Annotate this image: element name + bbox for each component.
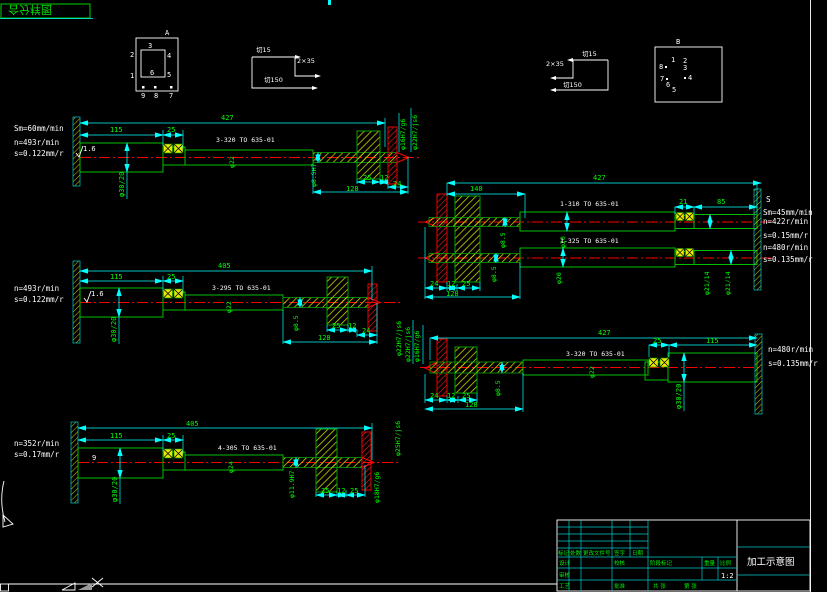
tb-count: 处数 xyxy=(570,549,582,557)
d4-w3: 25 xyxy=(462,392,470,400)
d2-s-mark: S xyxy=(766,195,771,204)
d5-dia: φ24 xyxy=(227,461,235,473)
detail-a-point: 2 xyxy=(130,51,134,59)
d2-w4: 128 xyxy=(446,290,459,298)
d5-fit1: φ18H7/g6 xyxy=(373,472,381,503)
d5-bushing xyxy=(316,429,337,492)
d1-speed: n=493r/min xyxy=(14,138,59,147)
d4-w1: 24 xyxy=(430,392,438,400)
cad-canvas: 合分样图 A 3 2 4 1 5 6 9 8 7 B 1 2 3 4 5 6 7… xyxy=(0,0,827,592)
d4-dim-l2: 25 xyxy=(653,337,661,345)
d2-w3: 25 xyxy=(462,280,470,288)
d2-bushing xyxy=(455,196,480,282)
d3-drill: φ8.5 xyxy=(292,315,300,331)
d3-bushing xyxy=(327,277,348,325)
d5-w2: 12 xyxy=(337,487,345,495)
d5-feedrev: s=0.17mm/r xyxy=(14,450,60,459)
d1-wall-hatch xyxy=(73,117,80,186)
tb-approve: 批准 xyxy=(614,582,626,590)
d3-fit: φ22H7/js6 xyxy=(395,321,403,356)
tb-audit: 审核 xyxy=(559,571,571,579)
toolpath-label: 切15 xyxy=(582,50,597,58)
d2-dim-85: 85 xyxy=(717,198,725,206)
detail-b-point: 7 xyxy=(660,75,664,83)
d3-speed: n=493r/min xyxy=(14,284,59,293)
tb-check: 校核 xyxy=(614,559,626,567)
tb-scale-label: 比例 xyxy=(720,559,732,567)
d3-process: 3-295 TO 635-01 xyxy=(212,284,271,292)
detail-a-point: 6 xyxy=(150,69,154,77)
tb-drawing-title: 加工示意图 xyxy=(747,556,795,568)
detail-a-point: 4 xyxy=(167,52,171,60)
toolpath-label: 切150 xyxy=(264,76,283,84)
d1-dia: φ22 xyxy=(228,156,236,168)
detail-b-point: 5 xyxy=(672,86,676,94)
d2-red-plate xyxy=(437,194,447,282)
tb-changefile: 更改文件号 xyxy=(583,549,611,557)
toolpath-label: 2×35 xyxy=(546,60,564,68)
detail-a-point: 1 xyxy=(130,72,134,80)
d1-dim-l2: 25 xyxy=(167,126,175,134)
d5-dim-total: 405 xyxy=(186,420,199,428)
d1-feedrev: s=0.122mm/r xyxy=(14,149,64,158)
d3-w1: 25 xyxy=(332,322,340,330)
d2-speed1: n=422r/min xyxy=(763,217,808,226)
tb-process: 工艺 xyxy=(559,583,571,590)
d3-dim-l1: 115 xyxy=(110,273,123,281)
d1-w1: 25 xyxy=(363,174,371,182)
detail-b-point: 6 xyxy=(666,81,670,89)
d2-process2: 1-325 TO 635-01 xyxy=(560,237,619,245)
d4-fit2: φ16H7/g6 xyxy=(413,331,421,362)
d5-fit2: φ25H7/js6 xyxy=(394,421,402,456)
tb-date: 日期 xyxy=(632,550,644,557)
tb-weight: 重量 xyxy=(704,559,716,567)
d4-drill: φ8.5 xyxy=(494,380,502,396)
tb-sheet-no: 第 张 xyxy=(684,582,697,590)
tb-sign: 签字 xyxy=(614,549,626,557)
detail-a-point: 3 xyxy=(148,42,152,50)
tb-mark: 标记 xyxy=(558,549,570,557)
detail-b-point: 1 xyxy=(671,56,675,64)
d3-roughness: 1.6 xyxy=(91,290,104,298)
d4-fit1: φ22H7/js6 xyxy=(404,327,412,362)
d1-dim-total: 427 xyxy=(221,114,234,122)
d2-fit2: φ21/14 xyxy=(724,271,732,295)
toolpath-label: 切15 xyxy=(256,46,271,54)
corner-title: 合分样图 xyxy=(8,3,52,17)
d5-red-plate xyxy=(362,432,371,490)
d3-wall-hatch xyxy=(73,261,80,343)
d1-fit2: φ22H7/js6 xyxy=(411,115,419,150)
d4-w2: 12 xyxy=(447,392,455,400)
d5-mark: 9 xyxy=(92,454,96,462)
d5-w3: 25 xyxy=(350,487,358,495)
detail-b-point: 8 xyxy=(659,63,663,71)
d2-drill1: φ8.5 xyxy=(499,232,507,248)
detail-a-point: 7 xyxy=(169,92,173,100)
d4-process: 3-320 TO 635-01 xyxy=(566,350,625,358)
d4-feedrev: s=0.135mm/r xyxy=(768,359,818,368)
d1-fit1: φ16H7/g6 xyxy=(399,119,407,150)
d3-dim-diastep: φ30/20 xyxy=(110,317,118,342)
sheet-background xyxy=(0,0,827,592)
d3-w4: 128 xyxy=(318,334,331,342)
detail-b-point: 4 xyxy=(688,74,692,82)
d5-wall-hatch xyxy=(71,422,78,503)
detail-b-label: B xyxy=(676,38,680,46)
d4-wall-hatch xyxy=(755,334,762,414)
d5-speed: n=352r/min xyxy=(14,439,59,448)
detail-a-point: 9 xyxy=(141,92,145,100)
d1-feed: Sm=60mm/min xyxy=(14,124,64,133)
d2-dim-140: 140 xyxy=(470,185,483,193)
d4-dia: φ22 xyxy=(588,366,596,378)
top-tick xyxy=(328,0,331,5)
d1-drill: φ8.5H7 xyxy=(310,163,318,187)
d2-dim-21: 21 xyxy=(679,198,687,206)
d5-dim-diastep: φ30/20 xyxy=(111,477,119,502)
d4-dim-l1: 115 xyxy=(706,337,719,345)
cad-viewport[interactable]: 合分样图 A 3 2 4 1 5 6 9 8 7 B 1 2 3 4 5 6 7… xyxy=(0,0,827,592)
d3-dim-total: 405 xyxy=(218,262,231,270)
d1-w3: 24 xyxy=(393,180,401,188)
tb-stage: 阶段标记 xyxy=(650,559,673,567)
d3-dim-l2: 25 xyxy=(167,273,175,281)
d3-dia: φ22 xyxy=(225,301,233,313)
d3-feedrev: s=0.122mm/r xyxy=(14,295,64,304)
d4-dim-diastep: φ30/20 xyxy=(675,384,683,409)
d1-process: 3-320 TO 635-01 xyxy=(216,136,275,144)
d2-feed: Sm=45mm/min xyxy=(763,208,813,217)
d2-feedrev2: s=0.135mm/r xyxy=(763,255,813,264)
d1-w4: 128 xyxy=(346,185,359,193)
d1-dim-diastep: φ30/20 xyxy=(118,172,126,197)
d5-dim-l2: 25 xyxy=(167,432,175,440)
d5-w1: 25 xyxy=(321,487,329,495)
toolpath-label: 切150 xyxy=(563,81,582,89)
detail-a-point: 8 xyxy=(154,92,158,100)
d2-feedrev1: s=0.15mm/r xyxy=(763,231,809,240)
detail-b-point: 3 xyxy=(683,64,687,72)
d2-w1: 24 xyxy=(430,280,438,288)
d5-process: 4-305 TO 635-01 xyxy=(218,444,277,452)
d2-process1: 1-310 TO 635-01 xyxy=(560,200,619,208)
d3-red-plate xyxy=(368,284,377,331)
d2-dia2: φ20 xyxy=(555,272,563,284)
d2-wall-hatch xyxy=(754,189,761,290)
d2-drill2: φ8.5 xyxy=(490,266,498,282)
d2-speed2: n=480r/min xyxy=(763,243,808,252)
detail-a-point: 5 xyxy=(167,71,171,79)
toolpath-label: 2×35 xyxy=(297,57,315,65)
d1-w2: 12 xyxy=(380,174,388,182)
d5-drill: φ11.9H7 xyxy=(288,471,296,498)
tb-scale-value: 1:2 xyxy=(721,572,734,580)
d2-fit1: φ21/14 xyxy=(703,271,711,295)
d2-dim-total: 427 xyxy=(593,174,606,182)
d5-dim-l1: 115 xyxy=(110,432,123,440)
d2-w2: 12 xyxy=(447,280,455,288)
d4-w4: 128 xyxy=(465,401,478,409)
tb-sheets-total: 共 张 xyxy=(653,582,666,590)
tb-design: 设计 xyxy=(559,559,571,567)
d3-w2: 12 xyxy=(348,322,356,330)
d4-speed: n=480r/min xyxy=(768,345,813,354)
d3-w3: 24 xyxy=(362,327,370,335)
d1-dim-l1: 115 xyxy=(110,126,123,134)
d1-roughness: 1.6 xyxy=(83,145,96,153)
d4-dim-total: 427 xyxy=(598,329,611,337)
